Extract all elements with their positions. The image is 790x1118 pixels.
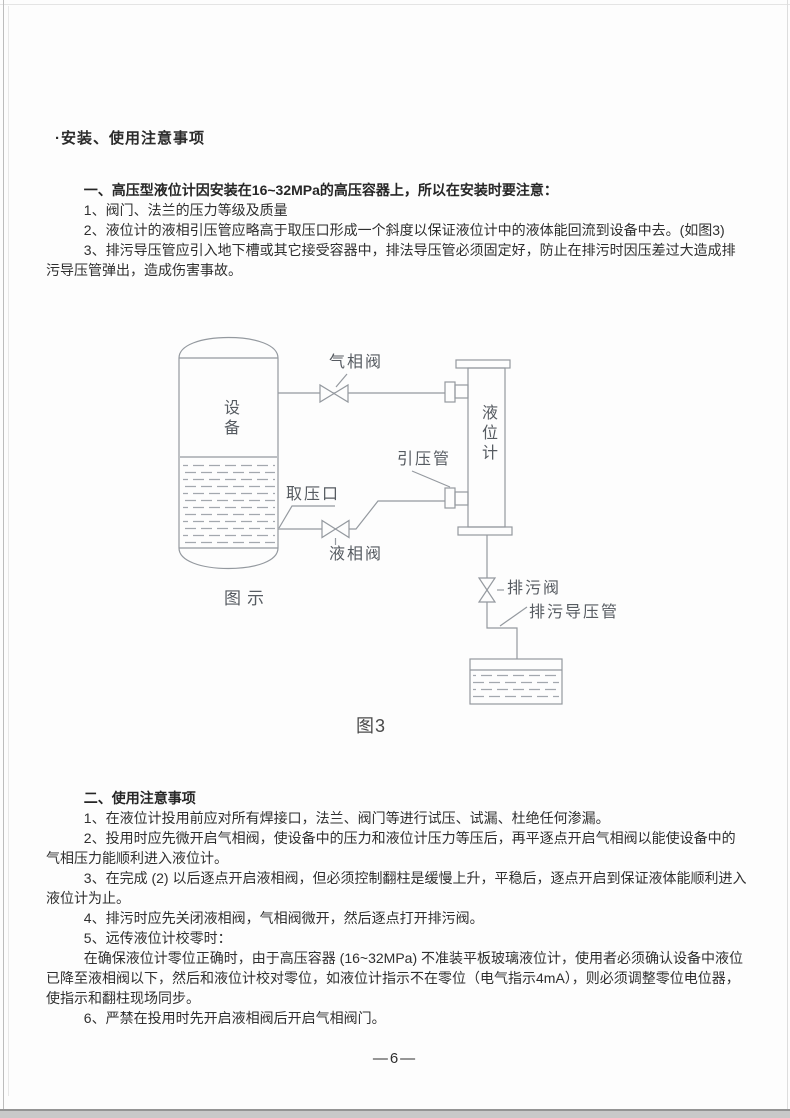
liquid-phase-valve-label: 液相阀 xyxy=(329,547,383,563)
level-gauge-outline xyxy=(412,360,512,535)
liquid-phase-valve-symbol xyxy=(322,521,336,538)
vessel-outline xyxy=(179,338,278,569)
diagram-inner-caption: 图示 xyxy=(224,584,270,609)
impulse-pipe-label: 引压管 xyxy=(397,452,451,468)
level-gauge-label: 液位计 xyxy=(479,404,495,464)
section-usage: 二、使用注意事项 1、在液位计投用前应对所有焊接口，法兰、阀门等进行试压、试漏、… xyxy=(46,788,748,1028)
scan-edge-top xyxy=(0,4,790,5)
drain-valve-symbol xyxy=(479,578,495,590)
section-installation: 一、高压型液位计因安装在16~32MPa的高压容器上，所以在安装时要注意： 1、… xyxy=(46,180,748,280)
page-title: ·安装、使用注意事项 xyxy=(55,127,205,148)
drain-impulse-pipe-label: 排污导压管 xyxy=(529,605,619,621)
liquid-phase-valve-symbol xyxy=(336,521,350,538)
section2-item-1: 1、在液位计投用前应对所有焊接口，法兰、阀门等进行试压、试漏、杜绝任何渗漏。 xyxy=(46,808,748,828)
section1-item-2: 2、液位计的液相引压管应略高于取压口形成一个斜度以保证液位计中的液体能回流到设备… xyxy=(46,220,748,240)
scan-edge-bottom-band xyxy=(0,1111,790,1118)
gas-phase-valve-symbol xyxy=(334,385,348,402)
drain-valve-symbol xyxy=(479,590,495,602)
section2-item-6: 6、严禁在投用时先开启液相阀后开启气相阀门。 xyxy=(46,1008,748,1028)
section1-intro: 一、高压型液位计因安装在16~32MPa的高压容器上，所以在安装时要注意： xyxy=(46,180,748,200)
section2-item-5: 5、远传液位计校零时： xyxy=(46,928,748,948)
vessel-label: 设备 xyxy=(221,399,237,439)
section2-item-3: 3、在完成 (2) 以后逐点开启液相阀，但必须控制翻柱是缓慢上升，平稳后，逐点开… xyxy=(46,868,748,908)
impulse-pipe-leader-line xyxy=(412,471,450,487)
section2-item-5-note: 在确保液位计零位正确时，由于高压容器 (16~32MPa) 不准装平板玻璃液位计… xyxy=(46,948,748,1008)
gas-valve-leader-line xyxy=(336,374,347,387)
section1-item-3: 3、排污导压管应引入地下槽或其它接受容器中，排法导压管必须固定好，防止在排污时因… xyxy=(46,240,748,280)
section1-item-1: 1、阀门、法兰的压力等级及质量 xyxy=(46,200,748,220)
section2-heading: 二、使用注意事项 xyxy=(46,788,748,808)
section2-item-2: 2、投用时应先微开启气相阀，使设备中的压力和液位计压力等压后，再平逐点开启气相阀… xyxy=(46,828,748,868)
scanned-manual-page: ·安装、使用注意事项 一、高压型液位计因安装在16~32MPa的高压容器上，所以… xyxy=(0,0,790,1118)
liquid-phase-pipe xyxy=(278,501,445,545)
gas-phase-pipe xyxy=(278,374,445,402)
pressure-tap-label: 取压口 xyxy=(286,487,340,503)
page-number: —6— xyxy=(0,1050,790,1067)
drain-valve-label: 排污阀 xyxy=(507,581,561,597)
gas-phase-valve-label: 气相阀 xyxy=(329,355,383,371)
gas-phase-valve-symbol xyxy=(320,385,334,402)
figure3-piping-diagram xyxy=(0,330,790,760)
figure-caption: 图3 xyxy=(356,712,386,738)
section2-item-4: 4、排污时应先关闭液相阀，气相阀微开，然后逐点打开排污阀。 xyxy=(46,908,748,928)
drain-impulse-pipe-leader-line xyxy=(500,607,527,626)
